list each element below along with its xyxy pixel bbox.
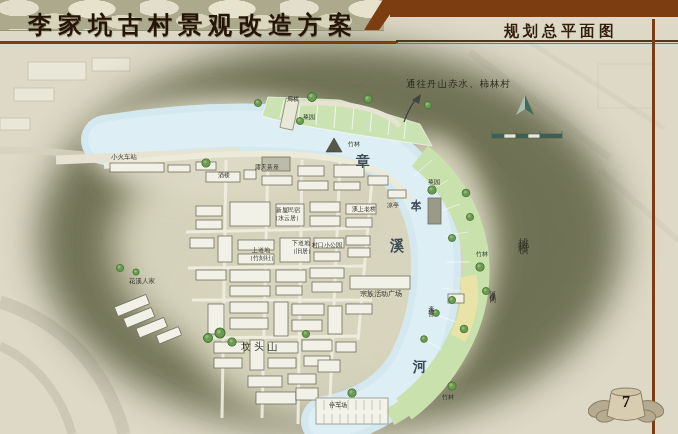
- page-number: 7: [588, 393, 664, 411]
- page-number-badge: 7: [588, 380, 664, 430]
- header-rule-right: [396, 40, 678, 44]
- water-mill: [428, 198, 441, 224]
- parking-lot: [316, 398, 388, 424]
- section-title: 规划总平面图: [478, 22, 644, 41]
- page-title: 李家坑古村景观改造方案: [28, 9, 358, 41]
- header-rule-left: [0, 41, 398, 44]
- right-margin-rule: [652, 19, 655, 434]
- site-map: [0, 0, 678, 434]
- header-brown-bar: [390, 0, 678, 17]
